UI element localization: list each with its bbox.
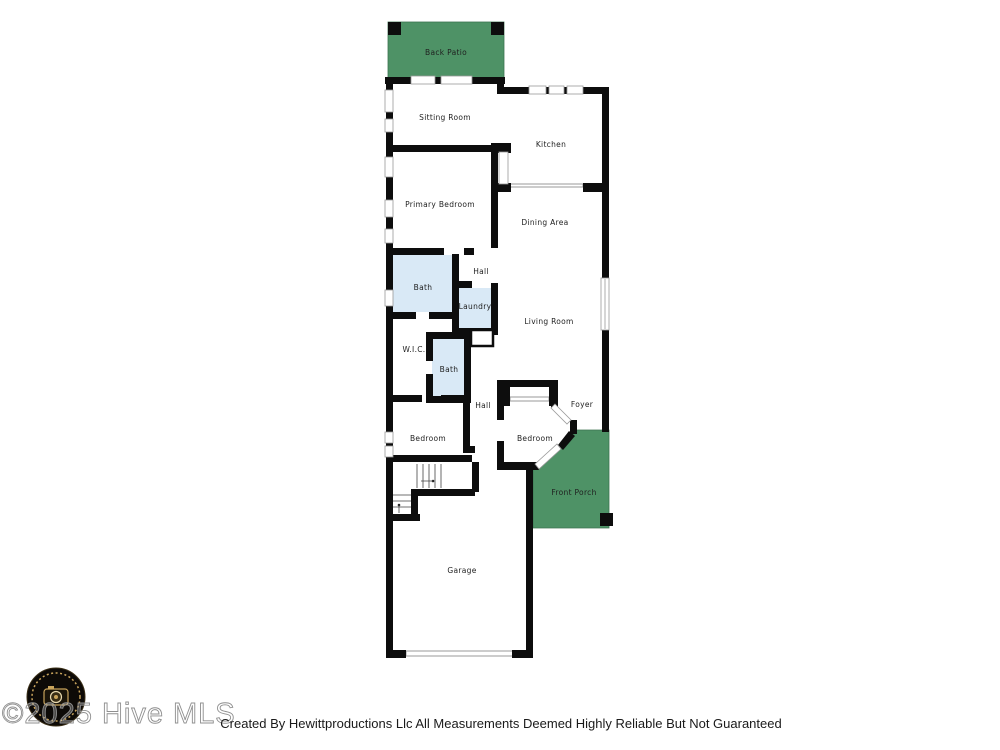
- room-label-hall-lower: Hall: [475, 401, 491, 410]
- primary-door: [499, 152, 508, 184]
- closet-doors: [510, 397, 549, 401]
- room-label-foyer: Foyer: [571, 400, 594, 409]
- room-label-bedroom-right: Bedroom: [517, 434, 553, 443]
- room-label-primary-bedroom: Primary Bedroom: [405, 200, 475, 209]
- room-label-wic: W.I.C.: [403, 345, 426, 354]
- room-label-laundry: Laundry: [459, 302, 492, 311]
- floorplan-canvas: Back Patio Sitting Room Kitchen Primary …: [0, 0, 1000, 750]
- room-label-back-patio: Back Patio: [425, 48, 467, 57]
- room-label-kitchen: Kitchen: [536, 140, 566, 149]
- room-label-sitting-room: Sitting Room: [419, 113, 471, 122]
- mls-watermark: ©2025 Hive MLS: [2, 698, 236, 730]
- room-label-front-porch: Front Porch: [551, 488, 596, 497]
- wet-rooms: [393, 255, 491, 396]
- room-label-living-room: Living Room: [524, 317, 573, 326]
- room-label-bath-primary: Bath: [414, 283, 433, 292]
- footer-credit: Created By Hewittproductions Llc All Mea…: [220, 716, 781, 731]
- porch-post: [600, 513, 613, 526]
- room-label-dining-area: Dining Area: [521, 218, 568, 227]
- kitchen-dining-opening: [510, 184, 583, 187]
- room-label-garage: Garage: [447, 566, 476, 575]
- room-label-hall-upper: Hall: [473, 267, 489, 276]
- hall-closet: [471, 330, 493, 346]
- garage-door: [406, 651, 514, 656]
- foyer-opening: [551, 404, 571, 424]
- front-porch-area: [533, 430, 609, 528]
- room-label-bath-hall: Bath: [440, 365, 459, 374]
- floorplan-drawing: Back Patio Sitting Room Kitchen Primary …: [0, 0, 1000, 750]
- room-label-bedroom-left: Bedroom: [410, 434, 446, 443]
